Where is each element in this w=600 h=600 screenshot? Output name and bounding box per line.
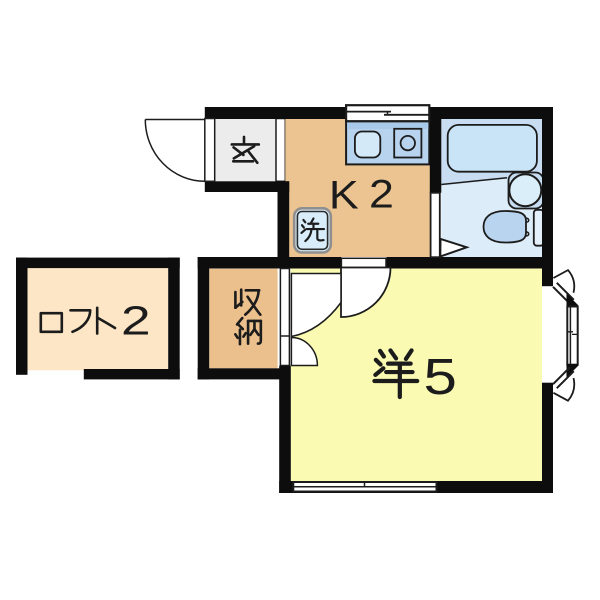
svg-text:2: 2: [369, 172, 394, 216]
svg-text:2: 2: [121, 298, 151, 344]
svg-text:K: K: [329, 173, 359, 217]
svg-text:5: 5: [423, 348, 456, 405]
